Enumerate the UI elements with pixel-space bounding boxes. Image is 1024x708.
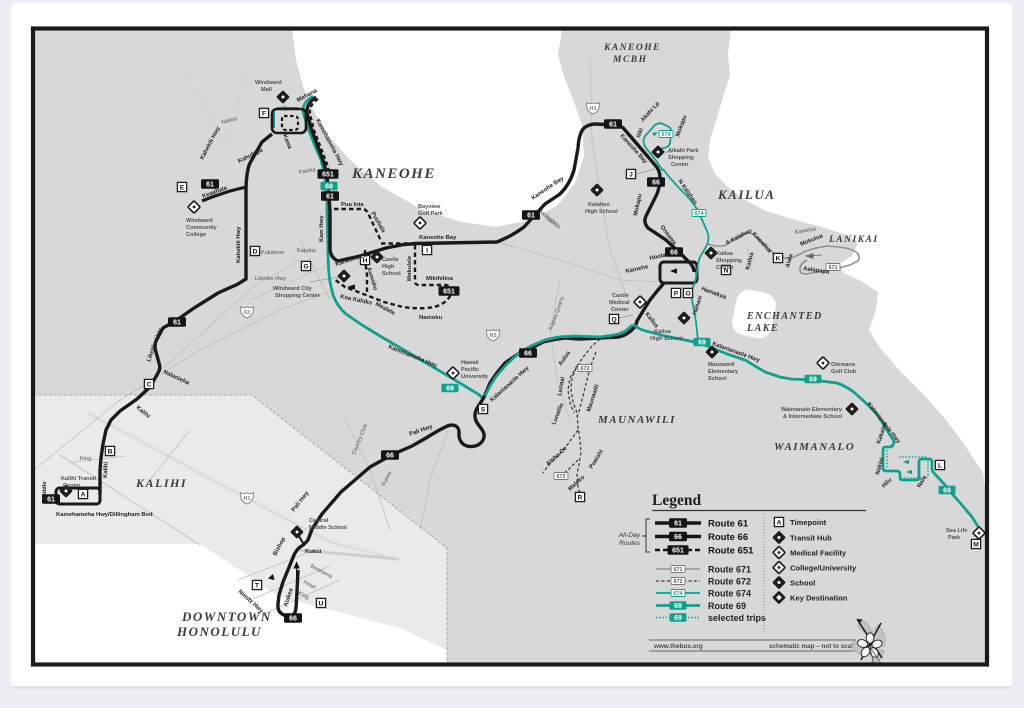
svg-text:LAKE: LAKE bbox=[746, 323, 779, 334]
svg-text:Center: Center bbox=[611, 307, 630, 313]
svg-text:672: 672 bbox=[674, 579, 683, 585]
svg-text:Legend: Legend bbox=[652, 492, 701, 509]
svg-text:672: 672 bbox=[581, 366, 590, 372]
svg-text:LANIKAI: LANIKAI bbox=[828, 235, 879, 245]
svg-text:School: School bbox=[382, 271, 401, 277]
svg-text:A: A bbox=[81, 491, 86, 498]
svg-text:Windward City: Windward City bbox=[273, 286, 313, 292]
svg-text:672: 672 bbox=[557, 474, 566, 480]
svg-text:Namoku: Namoku bbox=[419, 315, 443, 321]
svg-text:C: C bbox=[147, 381, 152, 388]
svg-text:KANEOHE: KANEOHE bbox=[603, 43, 661, 53]
svg-text:Kalaheo: Kalaheo bbox=[588, 202, 610, 208]
svg-text:Route 671: Route 671 bbox=[708, 565, 751, 575]
svg-text:Center: Center bbox=[63, 483, 82, 489]
svg-text:Center: Center bbox=[716, 265, 735, 271]
svg-text:G: G bbox=[303, 263, 308, 270]
svg-text:66: 66 bbox=[386, 453, 394, 460]
svg-text:Aikahi Park: Aikahi Park bbox=[668, 148, 699, 154]
svg-text:K: K bbox=[776, 255, 781, 262]
svg-text:Park: Park bbox=[948, 535, 961, 541]
svg-text:Kailua: Kailua bbox=[654, 329, 672, 335]
svg-text:61: 61 bbox=[609, 122, 617, 129]
svg-text:651: 651 bbox=[443, 289, 455, 296]
svg-text:Castle: Castle bbox=[382, 257, 399, 263]
svg-text:69: 69 bbox=[325, 183, 333, 190]
svg-text:schematic map – not to scale: schematic map – not to scale bbox=[769, 643, 857, 650]
svg-text:66: 66 bbox=[652, 180, 660, 187]
svg-text:Route 674: Route 674 bbox=[708, 589, 751, 599]
svg-text:B: B bbox=[108, 448, 113, 455]
svg-text:Pua Inia: Pua Inia bbox=[341, 202, 364, 208]
svg-text:MAUNAWILI: MAUNAWILI bbox=[597, 414, 676, 426]
svg-text:U: U bbox=[319, 600, 324, 607]
svg-text:Shopping Center: Shopping Center bbox=[275, 293, 321, 299]
svg-text:Kulukeoe: Kulukeoe bbox=[261, 250, 284, 256]
svg-text:Castle: Castle bbox=[612, 293, 629, 299]
svg-text:Medical Facility: Medical Facility bbox=[790, 549, 847, 558]
svg-text:All-Day: All-Day bbox=[618, 532, 641, 539]
svg-text:ENCHANTED: ENCHANTED bbox=[746, 311, 823, 322]
svg-text:Community: Community bbox=[186, 225, 218, 231]
svg-text:KALIHI: KALIHI bbox=[135, 476, 187, 490]
svg-text:69: 69 bbox=[674, 603, 682, 610]
svg-text:66: 66 bbox=[674, 534, 682, 541]
svg-text:Route 61: Route 61 bbox=[708, 519, 749, 530]
svg-text:HONOLULU: HONOLULU bbox=[176, 624, 262, 639]
svg-text:Maunawili: Maunawili bbox=[708, 362, 735, 368]
svg-text:MCBH: MCBH bbox=[612, 55, 648, 65]
svg-text:Mall: Mall bbox=[261, 87, 272, 93]
svg-text:I: I bbox=[426, 247, 428, 254]
svg-text:63: 63 bbox=[244, 310, 250, 316]
svg-text:61: 61 bbox=[47, 497, 55, 504]
svg-text:Windward: Windward bbox=[186, 218, 213, 224]
svg-text:L: L bbox=[938, 462, 942, 469]
svg-text:High: High bbox=[382, 264, 395, 270]
svg-text:Golf Club: Golf Club bbox=[831, 369, 857, 375]
svg-text:School: School bbox=[708, 376, 727, 382]
svg-text:Routes: Routes bbox=[619, 540, 641, 547]
svg-text:Transit Hub: Transit Hub bbox=[790, 534, 832, 543]
svg-text:O: O bbox=[685, 290, 690, 297]
svg-text:66: 66 bbox=[524, 351, 532, 358]
svg-text:69: 69 bbox=[674, 615, 682, 622]
svg-text:61: 61 bbox=[527, 213, 535, 220]
svg-text:Middle: Middle bbox=[42, 481, 48, 500]
svg-text:Kailua: Kailua bbox=[716, 251, 734, 257]
svg-text:Central: Central bbox=[309, 518, 329, 524]
svg-text:61: 61 bbox=[173, 320, 181, 327]
svg-text:Timepoint: Timepoint bbox=[790, 518, 827, 527]
svg-text:Route 672: Route 672 bbox=[708, 577, 751, 587]
svg-text:Route 66: Route 66 bbox=[708, 532, 748, 543]
svg-text:Olomana: Olomana bbox=[831, 362, 856, 368]
svg-text:Medical: Medical bbox=[609, 300, 630, 306]
svg-text:H3: H3 bbox=[590, 106, 597, 112]
svg-text:Shopping: Shopping bbox=[668, 155, 694, 161]
svg-text:671: 671 bbox=[829, 265, 838, 271]
svg-text:F: F bbox=[262, 110, 266, 117]
svg-text:& Intermediate School: & Intermediate School bbox=[783, 414, 843, 420]
svg-text:61: 61 bbox=[206, 182, 214, 189]
svg-text:674: 674 bbox=[662, 132, 671, 138]
svg-text:Shopping: Shopping bbox=[716, 258, 742, 264]
svg-text:Route 69: Route 69 bbox=[708, 601, 746, 611]
svg-text:671: 671 bbox=[674, 567, 683, 573]
svg-text:Kaneohe Bay: Kaneohe Bay bbox=[419, 235, 457, 241]
svg-text:66: 66 bbox=[289, 616, 297, 623]
svg-text:674: 674 bbox=[695, 211, 704, 217]
svg-text:Q: Q bbox=[611, 316, 616, 323]
svg-text:Kam Hwy: Kam Hwy bbox=[319, 215, 325, 242]
svg-text:651: 651 bbox=[672, 548, 684, 555]
svg-text:College: College bbox=[186, 232, 206, 238]
svg-text:Kapalai: Kapalai bbox=[297, 248, 316, 254]
svg-text:Bayview: Bayview bbox=[418, 204, 441, 210]
svg-text:selected trips: selected trips bbox=[708, 613, 766, 623]
svg-text:61: 61 bbox=[326, 194, 334, 201]
svg-text:69: 69 bbox=[446, 385, 454, 392]
svg-text:Likelike Hwy: Likelike Hwy bbox=[255, 276, 286, 282]
svg-text:Sea Life: Sea Life bbox=[946, 528, 967, 534]
svg-text:Mokulele: Mokulele bbox=[407, 255, 413, 281]
svg-text:College/University: College/University bbox=[790, 564, 857, 573]
svg-text:Kamehameha Hwy/Dillingham Bvd: Kamehameha Hwy/Dillingham Bvd bbox=[56, 512, 153, 518]
svg-text:P: P bbox=[674, 290, 679, 297]
svg-text:Kukui: Kukui bbox=[305, 549, 322, 555]
svg-text:69: 69 bbox=[943, 487, 951, 494]
svg-text:KAILUA: KAILUA bbox=[717, 187, 775, 202]
svg-text:R: R bbox=[578, 494, 583, 501]
svg-text:Center: Center bbox=[671, 162, 690, 168]
svg-text:66: 66 bbox=[670, 250, 678, 257]
svg-text:Hawaii: Hawaii bbox=[461, 360, 479, 366]
svg-text:High School: High School bbox=[585, 209, 618, 215]
svg-text:674: 674 bbox=[674, 591, 683, 597]
svg-text:Kalihi: Kalihi bbox=[103, 461, 110, 478]
svg-text:King: King bbox=[80, 456, 91, 462]
svg-text:Middle School: Middle School bbox=[309, 525, 347, 531]
svg-text:Golf Park: Golf Park bbox=[418, 211, 444, 217]
svg-text:Kahekili Hwy: Kahekili Hwy bbox=[236, 226, 242, 263]
svg-text:Elementary: Elementary bbox=[708, 369, 739, 375]
svg-text:D: D bbox=[253, 248, 258, 255]
svg-text:T: T bbox=[255, 582, 259, 589]
svg-text:University: University bbox=[461, 374, 489, 380]
svg-text:E: E bbox=[180, 184, 185, 191]
svg-text:Route 651: Route 651 bbox=[708, 546, 754, 557]
svg-text:Windward: Windward bbox=[255, 80, 282, 86]
svg-text:www.thebus.org: www.thebus.org bbox=[653, 643, 703, 650]
svg-text:S: S bbox=[481, 406, 486, 413]
svg-text:H1: H1 bbox=[244, 496, 251, 502]
svg-text:A: A bbox=[777, 519, 782, 526]
svg-text:M: M bbox=[973, 541, 979, 548]
svg-text:Waimanalo Elementary: Waimanalo Elementary bbox=[781, 407, 843, 413]
svg-text:WAIMANALO: WAIMANALO bbox=[774, 441, 855, 453]
svg-text:Kalihi Transit: Kalihi Transit bbox=[61, 476, 96, 482]
svg-text:69: 69 bbox=[698, 339, 706, 346]
svg-text:H3: H3 bbox=[490, 333, 497, 339]
svg-text:High School: High School bbox=[650, 336, 683, 342]
svg-text:69: 69 bbox=[809, 376, 817, 383]
svg-text:Pacific: Pacific bbox=[461, 367, 479, 373]
svg-text:Mikihilina: Mikihilina bbox=[426, 276, 454, 282]
svg-text:61: 61 bbox=[674, 521, 682, 528]
svg-text:School: School bbox=[790, 579, 815, 588]
svg-text:651: 651 bbox=[322, 172, 334, 179]
svg-text:KANEOHE: KANEOHE bbox=[351, 166, 436, 182]
svg-text:Key Destination: Key Destination bbox=[790, 594, 848, 603]
svg-text:J: J bbox=[629, 171, 633, 178]
